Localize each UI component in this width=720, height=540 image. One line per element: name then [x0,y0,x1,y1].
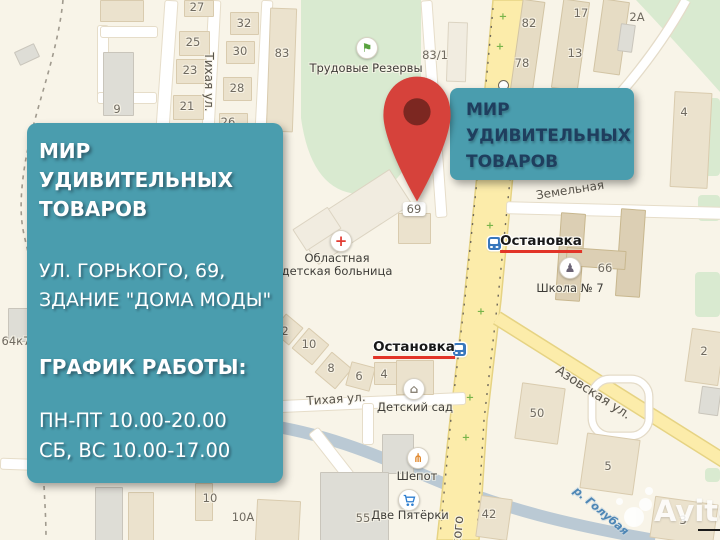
bus-stop-icon [488,237,501,250]
pin-title-line: УДИВИТЕЛЬНЫХ [466,123,634,149]
store-title-line: УДИВИТЕЛЬНЫХ [39,166,283,195]
map-building [320,472,389,540]
info-panel: МИР УДИВИТЕЛЬНЫХ ТОВАРОВ УЛ. ГОРЬКОГО, 6… [27,123,283,483]
tree-marker: + [477,307,485,318]
building-number-label: 28 [230,81,245,95]
kindergarten-icon: ⌂ [403,378,425,400]
tree-marker: + [499,12,507,23]
store-address-line: УЛ. ГОРЬКОГО, 69, [39,257,283,286]
map-building [100,0,144,22]
watermark-text: Avito [654,494,720,528]
restaurant-icon: ⋔ [407,447,429,469]
restaurant-label: Шепот [397,469,438,483]
park-area [695,272,720,317]
grocery-label: Две Пятёрки [371,508,449,522]
building-number-label: 4 [680,105,687,119]
map-scale-bar [698,529,720,531]
kindergarten-label: Детский сад [377,400,453,414]
pin-callout-panel: МИР УДИВИТЕЛЬНЫХ ТОВАРОВ [450,88,634,180]
park-area [705,468,720,482]
map-building [266,8,297,133]
tree-marker: + [486,221,494,232]
building-number-label: 42 [482,507,497,521]
street-road [100,26,158,38]
building-number-label: 13 [568,46,583,60]
tree-marker: + [466,393,474,404]
building-number-label: 23 [183,63,198,77]
watermark-dot [639,498,652,511]
building-number-label: 6 [355,369,362,383]
building-number-label: 30 [233,44,248,58]
tree-marker: + [462,433,470,444]
store-title-line: МИР [39,137,283,166]
pin-title-line: ТОВАРОВ [466,149,634,175]
building-number-label: 27 [190,0,205,14]
map-building [95,487,123,540]
store-title: МИР УДИВИТЕЛЬНЫХ ТОВАРОВ [39,137,283,224]
watermark-dot [624,507,644,527]
building-number-label: 82 [522,16,537,30]
watermark-dot [616,498,623,505]
store-address-line: ЗДАНИЕ "ДОМА МОДЫ" [39,286,283,315]
stadium-label: Трудовые Резервы [309,61,422,75]
map-building [255,499,301,540]
map-building [698,386,720,417]
map-ad-screenshot: 273225302328212698383/1827817132А4666964… [0,0,720,540]
map-building [398,213,431,244]
building-number-label: 10 [302,337,317,351]
schedule-heading: ГРАФИК РАБОТЫ: [39,355,283,379]
schedule-line: ПН-ПТ 10.00-20.00 [39,406,283,436]
building-number-label: 55 [356,511,371,525]
map-pin [377,75,457,203]
hospital-label: детская больница [282,264,393,278]
tree-marker: + [496,42,504,53]
street-label: Тихая ул. [202,52,216,111]
building-number-label: 32 [237,16,252,30]
map-building [670,91,713,189]
building-number-label: 2 [700,344,707,358]
stadium-icon: ⚑ [356,37,378,59]
building-number-label: 9 [113,102,120,116]
school-icon: ♟ [559,257,581,279]
building-number-label: 21 [180,99,195,113]
schedule-times: ПН-ПТ 10.00-20.00 СБ, ВС 10.00-17.00 [39,406,283,466]
building-number-label: 10А [232,510,255,524]
street-road [362,403,374,445]
building-number-label: 10 [203,491,218,505]
watermark-dot [645,487,653,495]
building-number-label: 5 [604,459,611,473]
building-number-label: 83 [275,46,290,60]
building-number-label: 69 [403,202,426,216]
store-title-line: ТОВАРОВ [39,195,283,224]
pin-title-line: МИР [466,97,634,123]
building-number-label: 50 [530,406,545,420]
building-number-label: 78 [515,56,530,70]
building-number-label: 8 [327,361,334,375]
building-number-label: 83/1 [422,48,448,62]
school-label: Школа № 7 [536,281,603,295]
building-number-label: 17 [574,6,589,20]
building-number-label: 25 [186,35,201,49]
building-number-label: 66 [598,261,613,275]
store-address: УЛ. ГОРЬКОГО, 69, ЗДАНИЕ "ДОМА МОДЫ" [39,257,283,315]
map-building [446,22,468,83]
hospital-icon: + [330,230,352,252]
bus-stop-label: Остановка [373,339,455,359]
building-number-label: 2А [629,10,644,24]
map-building [128,492,154,540]
schedule-line: СБ, ВС 10.00-17.00 [39,436,283,466]
building-number-label: 4 [380,367,387,381]
footpath [44,486,46,540]
bus-stop-label: Остановка [500,233,582,253]
hospital-label: Областная [304,251,369,265]
